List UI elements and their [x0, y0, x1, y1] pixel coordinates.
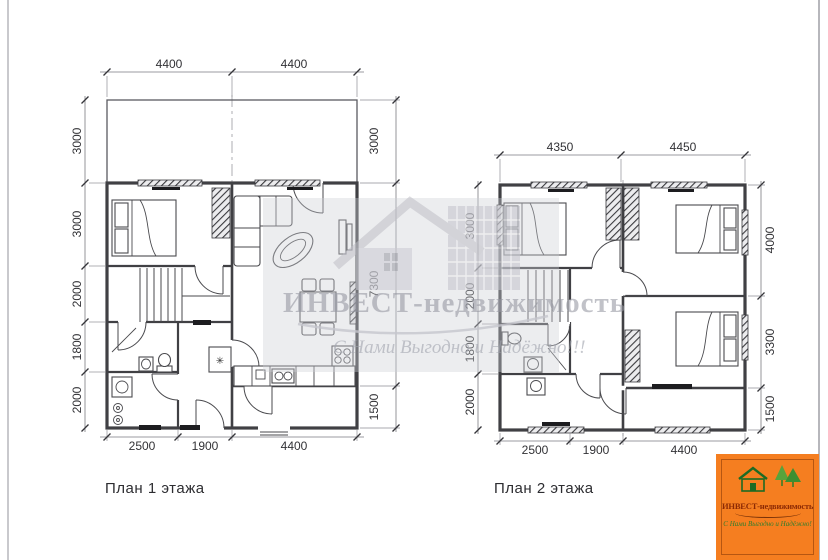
floor1-water-heater: ✳	[209, 347, 231, 372]
dim-label: 1900	[192, 439, 219, 453]
floor2-bed-topright	[676, 205, 738, 253]
watermark-brand: ИНВЕСТ-недвижимость	[283, 287, 626, 320]
agency-logo: ИНВЕСТ-недвижимость С Нами Выгодно и Над…	[716, 454, 819, 560]
logo-swoosh	[735, 512, 801, 518]
floor1-stairs	[140, 268, 230, 322]
watermark-tagline: С Нами Выгодно и Надёжно!!!	[333, 337, 586, 359]
dim-label: 3000	[70, 210, 84, 237]
dim-label: 4400	[281, 57, 308, 71]
dim-label: 2000	[70, 280, 84, 307]
dim-label: 3000	[70, 127, 84, 154]
floor2-washer	[527, 378, 545, 395]
floor1-wardrobe	[212, 188, 230, 238]
dim-label: 1800	[70, 333, 84, 360]
floor2-bed-bottomright	[676, 312, 738, 366]
dim-label: 4350	[547, 140, 574, 154]
dim-label: 1900	[583, 443, 610, 457]
scanned-floorplan-page: ✳ 4400 4400	[0, 0, 828, 560]
dim-label: 1500	[367, 393, 381, 420]
floor1-plan-label: План 1 этажа	[105, 480, 205, 497]
dim-label: 4000	[763, 226, 777, 253]
floor2-plan-label: План 2 этажа	[494, 480, 594, 497]
dim-label: 2500	[129, 439, 156, 453]
dim-label: 4400	[156, 57, 183, 71]
dim-label: 4400	[281, 439, 308, 453]
floor1-bed	[112, 200, 176, 256]
dim-label: 1500	[763, 395, 777, 422]
floor1-utility-fixtures	[112, 377, 132, 425]
logo-house-icon	[735, 462, 801, 494]
dim-label: 2500	[522, 443, 549, 457]
dim-label: 2000	[463, 388, 477, 415]
dim-label: 4400	[671, 443, 698, 457]
dim-label: 3300	[763, 328, 777, 355]
dim-label: 2000	[70, 386, 84, 413]
dim-label: 3000	[367, 127, 381, 154]
logo-brand-text: ИНВЕСТ-недвижимость	[722, 501, 813, 511]
heater-symbol: ✳	[216, 356, 224, 367]
logo-tagline-text: С Нами Выгодно и Надёжно!	[722, 520, 813, 528]
dim-label: 4450	[670, 140, 697, 154]
